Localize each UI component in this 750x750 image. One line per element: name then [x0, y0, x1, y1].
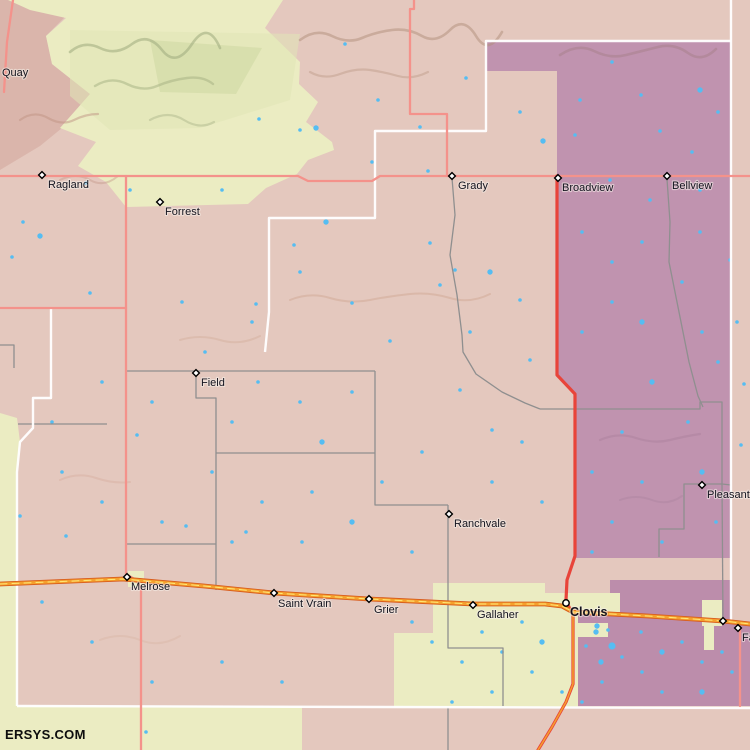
water-body — [560, 690, 564, 694]
water-body — [260, 500, 264, 504]
water-body — [640, 240, 644, 244]
water-body — [100, 500, 104, 504]
water-body — [298, 400, 302, 404]
town-label-broadview: Broadview — [562, 182, 613, 194]
water-body — [220, 660, 224, 664]
water-body — [460, 660, 464, 664]
water-body — [735, 320, 739, 324]
water-body — [349, 519, 354, 524]
water-body — [540, 500, 544, 504]
water-body — [610, 300, 614, 304]
water-body — [730, 670, 734, 674]
yellow-notch-area — [578, 623, 608, 637]
water-body — [464, 76, 468, 80]
water-body — [313, 125, 318, 130]
water-body — [388, 339, 392, 343]
water-body — [528, 358, 532, 362]
city-marker-clovis — [563, 600, 569, 606]
water-body — [594, 623, 599, 628]
water-body — [649, 379, 654, 384]
water-body — [418, 125, 422, 129]
water-body — [580, 700, 584, 704]
water-body — [150, 680, 154, 684]
water-body — [450, 700, 454, 704]
water-body — [426, 169, 430, 173]
water-body — [428, 241, 432, 245]
water-body — [700, 330, 704, 334]
town-label-pleasant-hill: Pleasant Hill — [707, 489, 750, 501]
water-body — [593, 629, 598, 634]
water-body — [490, 428, 494, 432]
water-body — [298, 270, 302, 274]
water-body — [600, 680, 604, 684]
water-body — [90, 640, 94, 644]
water-body — [250, 320, 254, 324]
water-body — [298, 128, 302, 132]
water-body — [640, 670, 644, 674]
water-body — [610, 60, 614, 64]
water-body — [539, 639, 544, 644]
water-body — [490, 690, 494, 694]
water-body — [716, 360, 720, 364]
water-body — [640, 480, 644, 484]
water-body — [210, 470, 214, 474]
water-body — [487, 269, 492, 274]
water-body — [490, 480, 494, 484]
water-body — [658, 129, 662, 133]
water-body — [690, 150, 694, 154]
water-body — [10, 255, 14, 259]
water-body — [580, 230, 584, 234]
water-body — [660, 690, 664, 694]
water-body — [184, 524, 188, 528]
water-body — [40, 600, 44, 604]
water-body — [64, 534, 68, 538]
water-body — [742, 382, 746, 386]
water-body — [680, 640, 684, 644]
water-body — [686, 420, 690, 424]
water-body — [254, 302, 258, 306]
water-body — [438, 283, 442, 287]
water-body — [256, 380, 260, 384]
water-body — [292, 243, 296, 247]
water-body — [323, 219, 328, 224]
water-body — [578, 98, 582, 102]
water-body — [220, 188, 224, 192]
water-body — [300, 540, 304, 544]
water-body — [376, 98, 380, 102]
town-label-farwell: Farwell — [742, 632, 750, 644]
water-body — [639, 630, 643, 634]
water-body — [380, 480, 384, 484]
water-body — [520, 620, 524, 624]
town-label-ranchvale: Ranchvale — [454, 518, 506, 530]
water-body — [580, 330, 584, 334]
water-body — [620, 430, 624, 434]
water-body — [598, 659, 603, 664]
water-body — [244, 530, 248, 534]
water-body — [430, 640, 434, 644]
water-body — [160, 520, 164, 524]
water-body — [699, 689, 704, 694]
water-body — [518, 110, 522, 114]
town-label-bellview: Bellview — [672, 180, 712, 192]
water-body — [203, 350, 207, 354]
water-body — [530, 670, 534, 674]
town-label-gallaher: Gallaher — [477, 609, 519, 621]
town-label-ragland: Ragland — [48, 179, 89, 191]
water-body — [700, 660, 704, 664]
map-page: QuayRaglandForrestGradyBroadviewBellview… — [0, 0, 750, 750]
water-body — [620, 655, 624, 659]
water-body — [88, 291, 92, 295]
water-body — [698, 230, 702, 234]
water-body — [350, 301, 354, 305]
town-label-forrest: Forrest — [165, 206, 200, 218]
water-body — [606, 628, 610, 632]
water-body — [280, 680, 284, 684]
water-body — [257, 117, 261, 121]
water-body — [100, 380, 104, 384]
water-body — [659, 649, 664, 654]
water-body — [458, 388, 462, 392]
water-body — [608, 642, 615, 649]
water-body — [50, 420, 54, 424]
water-body — [310, 490, 314, 494]
water-body — [520, 440, 524, 444]
town-label-grier: Grier — [374, 604, 399, 616]
water-body — [540, 138, 545, 143]
water-body — [128, 188, 132, 192]
water-body — [720, 650, 724, 654]
water-body — [18, 514, 22, 518]
town-label-saint-vrain: Saint Vrain — [278, 598, 331, 610]
water-body — [610, 260, 614, 264]
water-body — [410, 620, 414, 624]
water-body — [230, 540, 234, 544]
water-body — [697, 87, 702, 92]
water-body — [590, 550, 594, 554]
water-body — [639, 319, 644, 324]
water-body — [180, 300, 184, 304]
water-body — [714, 520, 718, 524]
water-body — [699, 469, 704, 474]
water-body — [150, 400, 154, 404]
town-label-melrose: Melrose — [131, 581, 170, 593]
water-body — [21, 220, 25, 224]
town-label-field: Field — [201, 377, 225, 389]
town-label-grady: Grady — [458, 180, 488, 192]
water-body — [739, 443, 743, 447]
water-body — [584, 644, 588, 648]
water-body — [610, 520, 614, 524]
water-body — [343, 42, 347, 46]
water-body — [453, 268, 457, 272]
water-body — [468, 330, 472, 334]
water-body — [350, 390, 354, 394]
water-body — [518, 298, 522, 302]
water-body — [590, 470, 594, 474]
watermark: ERSYS.COM — [5, 727, 86, 742]
water-body — [230, 420, 234, 424]
water-body — [573, 133, 577, 137]
water-body — [135, 433, 139, 437]
water-body — [370, 160, 374, 164]
water-body — [716, 110, 720, 114]
water-body — [319, 439, 324, 444]
water-body — [37, 233, 42, 238]
town-label-clovis: Clovis — [570, 605, 608, 619]
water-body — [648, 198, 652, 202]
water-body — [480, 630, 484, 634]
town-label-quay: Quay — [2, 67, 29, 79]
water-body — [60, 470, 64, 474]
map-canvas[interactable]: QuayRaglandForrestGradyBroadviewBellview… — [0, 0, 750, 750]
water-body — [410, 550, 414, 554]
water-body — [420, 450, 424, 454]
water-body — [680, 280, 684, 284]
water-body — [660, 540, 664, 544]
water-body — [144, 730, 148, 734]
water-body — [639, 93, 643, 97]
